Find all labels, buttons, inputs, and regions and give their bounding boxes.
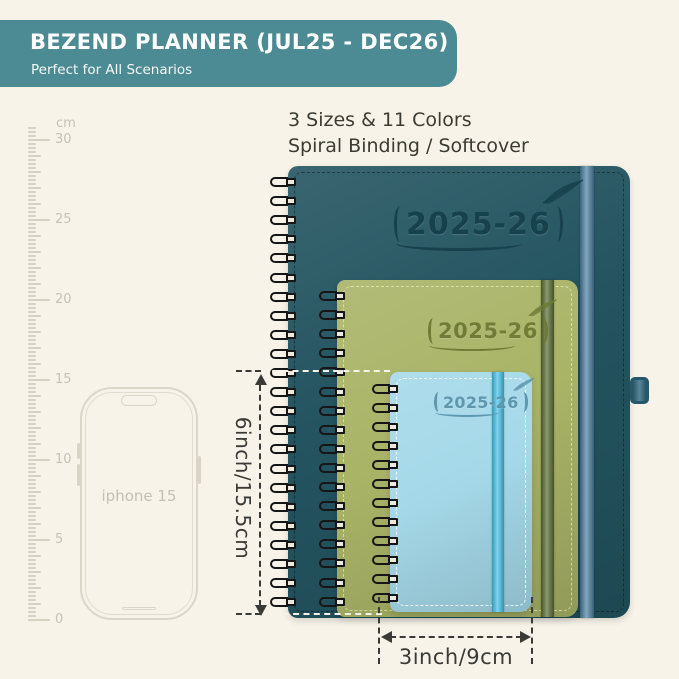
planner-small-spiral: [372, 384, 400, 612]
ruler-tick: [28, 403, 36, 405]
ruler-tick: [28, 487, 36, 489]
spiral-coil: [372, 460, 398, 470]
ruler-tick: [28, 543, 36, 545]
ruler-tick: [28, 551, 36, 553]
width-arrow-left: [381, 631, 392, 643]
spiral-coil: [270, 292, 296, 302]
ruler-tick: [28, 515, 36, 517]
coil-hole: [286, 522, 296, 530]
height-ref-line-top: [236, 370, 261, 372]
emboss-right-paren: [519, 392, 528, 412]
iphone-outline: iphone 15: [80, 387, 198, 620]
ruler-tick: [28, 531, 36, 533]
ruler-tick: [28, 583, 36, 585]
coil-hole: [335, 464, 345, 472]
width-ref-line-left: [378, 597, 380, 664]
spiral-coil: [319, 387, 345, 397]
height-dimension-line: [259, 385, 261, 606]
ruler-tick: [28, 563, 36, 565]
ruler-tick: [28, 155, 41, 157]
planner-large-year-emboss: 2025-26: [394, 206, 563, 242]
coil-hole: [388, 480, 398, 488]
ruler-tick: [28, 375, 36, 377]
coil-hole: [286, 178, 296, 186]
ruler-tick: [28, 447, 36, 449]
spiral-coil: [319, 463, 345, 473]
ruler-tick: [28, 467, 36, 469]
spiral-coil: [270, 215, 296, 225]
ruler-tick: [28, 419, 36, 421]
ruler-tick: [28, 187, 41, 189]
spiral-coil: [270, 311, 296, 321]
ruler-tick: [28, 183, 36, 185]
spiral-coil: [319, 539, 345, 549]
ruler-tick: [28, 411, 41, 413]
ruler-tick-label: 15: [55, 372, 89, 387]
ruler-tick: [28, 335, 36, 337]
coil-hole: [388, 404, 398, 412]
feather-icon: [511, 377, 536, 392]
ruler-tick: [28, 195, 36, 197]
ruler-tick: [28, 275, 36, 277]
coil-hole: [335, 330, 345, 338]
ruler-tick-label: 30: [55, 132, 89, 147]
ruler-tick: [28, 219, 50, 221]
coil-hole: [335, 311, 345, 319]
ruler-tick: [28, 383, 36, 385]
ruler-tick: [28, 431, 36, 433]
feather-icon: [526, 298, 558, 318]
ruler-tick: [28, 295, 36, 297]
spiral-coil: [319, 329, 345, 339]
emboss-left-paren: [394, 206, 406, 242]
coil-hole: [286, 216, 296, 224]
spiral-coil: [270, 177, 296, 187]
planner-large-spiral: [270, 177, 298, 616]
coil-hole: [286, 388, 296, 396]
coil-hole: [286, 293, 296, 301]
volume-down-button: [77, 464, 80, 486]
ruler-tick: [28, 483, 36, 485]
ruler-tick: [28, 319, 36, 321]
ruler-tick: [28, 239, 36, 241]
coil-hole: [388, 423, 398, 431]
ruler-tick: [28, 243, 36, 245]
width-ref-line-right: [531, 597, 533, 664]
ruler-tick: [28, 179, 36, 181]
planner-small-year-emboss: 2025-26: [434, 392, 528, 412]
ruler-tick: [28, 499, 36, 501]
ruler-tick: [28, 311, 36, 313]
coil-hole: [335, 407, 345, 415]
emboss-left-paren: [428, 318, 438, 344]
spiral-coil: [319, 348, 345, 358]
width-arrow-right: [520, 631, 531, 643]
emboss-underline: [429, 340, 515, 351]
spiral-coil: [270, 253, 296, 263]
ruler-tick: [28, 535, 36, 537]
planner-medium-spiral: [319, 291, 347, 616]
coil-hole: [286, 445, 296, 453]
coil-hole: [286, 254, 296, 262]
ruler-tick: [28, 127, 36, 129]
ruler-tick: [28, 415, 36, 417]
coil-hole: [335, 598, 345, 606]
ruler-tick: [28, 259, 36, 261]
width-dimension-line: [390, 636, 522, 638]
pen-loop: [630, 377, 649, 404]
ruler-tick: [28, 495, 36, 497]
ruler-tick: [28, 303, 36, 305]
ruler-tick: [28, 595, 36, 597]
ruler-tick: [28, 159, 36, 161]
ruler-tick: [28, 327, 36, 329]
coil-hole: [286, 503, 296, 511]
ruler-tick: [28, 255, 36, 257]
ruler-tick: [28, 479, 36, 481]
coil-hole: [335, 292, 345, 300]
ruler-tick: [28, 271, 36, 273]
spiral-coil: [270, 406, 296, 416]
ruler-tick: [28, 423, 36, 425]
spiral-coil: [319, 444, 345, 454]
ruler-tick: [28, 371, 36, 373]
coil-hole: [286, 331, 296, 339]
ruler-tick: [28, 343, 36, 345]
ruler-tick: [28, 611, 36, 613]
ruler-tick-label: 20: [55, 292, 89, 307]
ruler-tick: [28, 523, 41, 525]
ruler-tick: [28, 451, 36, 453]
spiral-coil: [270, 578, 296, 588]
ruler-tick: [28, 171, 41, 173]
spiral-coil: [372, 498, 398, 508]
ruler-tick: [28, 147, 36, 149]
ruler-tick: [28, 151, 36, 153]
ruler-tick: [28, 215, 36, 217]
planner-large-elastic-band: [580, 166, 594, 618]
ruler-tick: [28, 459, 50, 461]
spiral-coil: [372, 536, 398, 546]
binding-cover-text: Spiral Binding / Softcover: [288, 133, 529, 159]
ruler-tick: [28, 299, 50, 301]
coil-hole: [388, 537, 398, 545]
emboss-right-paren: [551, 206, 563, 242]
ruler-tick: [28, 363, 41, 365]
coil-hole: [388, 499, 398, 507]
ruler-tick: [28, 475, 41, 477]
ruler-tick: [28, 567, 36, 569]
ruler-tick: [28, 455, 36, 457]
ruler-tick: [28, 519, 36, 521]
ruler-tick: [28, 235, 41, 237]
spiral-coil: [270, 540, 296, 550]
spiral-coil: [319, 310, 345, 320]
emboss-right-paren: [538, 318, 548, 344]
spiral-coil: [372, 422, 398, 432]
ruler-tick: [28, 575, 36, 577]
spiral-coil: [319, 501, 345, 511]
coil-hole: [388, 556, 398, 564]
coil-hole: [335, 388, 345, 396]
ruler-tick: [28, 191, 36, 193]
ruler-tick: [28, 555, 41, 557]
spiral-coil: [319, 597, 345, 607]
coil-hole: [335, 502, 345, 510]
ruler-tick: [28, 387, 36, 389]
coil-hole: [388, 575, 398, 583]
spiral-coil: [372, 384, 398, 394]
coil-hole: [286, 235, 296, 243]
coil-hole: [286, 484, 296, 492]
spiral-coil: [270, 273, 296, 283]
ruler-tick: [28, 399, 36, 401]
coil-hole: [388, 442, 398, 450]
spiral-coil: [319, 520, 345, 530]
width-dimension-label: 3inch/9cm: [399, 645, 513, 669]
coil-hole: [335, 426, 345, 434]
height-ref-line-top-overlay: [262, 370, 390, 372]
ruler-tick: [28, 527, 36, 529]
ruler-tick: [28, 407, 36, 409]
coil-hole: [335, 349, 345, 357]
ruler-tick: [28, 463, 36, 465]
ruler-tick: [28, 251, 41, 253]
spiral-coil: [372, 593, 398, 603]
spiral-coil: [270, 483, 296, 493]
coil-hole: [286, 274, 296, 282]
emboss-underline: [435, 408, 499, 417]
ruler-tick: [28, 167, 36, 169]
ruler-tick: [28, 163, 36, 165]
ruler-tick: [28, 559, 36, 561]
spiral-coil: [319, 406, 345, 416]
ruler-tick: [28, 203, 41, 205]
ruler-tick: [28, 287, 36, 289]
ruler-tick: [28, 247, 36, 249]
ruler-tick: [28, 143, 36, 145]
ruler-tick: [28, 139, 50, 141]
coil-hole: [286, 407, 296, 415]
spiral-coil: [372, 574, 398, 584]
ruler-tick: [28, 307, 36, 309]
ruler-tick: [28, 323, 36, 325]
ruler-tick: [28, 603, 41, 605]
ruler-tick: [28, 279, 36, 281]
coil-hole: [335, 445, 345, 453]
ruler-tick: [28, 267, 41, 269]
ruler-tick: [28, 547, 36, 549]
coil-hole: [388, 518, 398, 526]
spiral-coil: [319, 578, 345, 588]
coil-hole: [388, 461, 398, 469]
ruler-tick: [28, 619, 50, 621]
home-indicator: [122, 607, 156, 610]
ruler-tick: [28, 503, 36, 505]
spiral-coil: [270, 521, 296, 531]
planner-medium-year-label: 2025-26: [438, 319, 538, 343]
ruler-tick: [28, 283, 41, 285]
ruler-unit-label: cm: [56, 116, 76, 131]
ruler-tick-label: 0: [55, 612, 89, 627]
spiral-coil: [270, 444, 296, 454]
spiral-coil: [319, 425, 345, 435]
coil-hole: [335, 483, 345, 491]
ruler-tick: [28, 263, 36, 265]
ruler-tick: [28, 339, 36, 341]
ruler-tick: [28, 587, 41, 589]
spiral-coil: [319, 558, 345, 568]
ruler-tick: [28, 439, 36, 441]
ruler-tick: [28, 351, 36, 353]
height-ref-line-bottom-overlay: [262, 613, 382, 615]
ruler-tick: [28, 135, 36, 137]
ruler-tick: [28, 199, 36, 201]
ruler-tick: [28, 607, 36, 609]
spiral-coil: [270, 196, 296, 206]
product-infographic: BEZEND PLANNER (JUL25 - DEC26) Perfect f…: [0, 0, 679, 679]
coil-hole: [286, 560, 296, 568]
coil-hole: [286, 598, 296, 606]
spiral-coil: [319, 291, 345, 301]
ruler-tick: [28, 615, 36, 617]
ruler-tick: [28, 315, 41, 317]
ruler-tick: [28, 491, 41, 493]
ruler-tick-label: 25: [55, 212, 89, 227]
ruler-tick: [28, 291, 36, 293]
spiral-coil: [270, 330, 296, 340]
ruler-tick: [28, 131, 36, 133]
ruler-tick: [28, 599, 36, 601]
sizes-colors-text: 3 Sizes & 11 Colors: [288, 107, 529, 133]
ruler-tick: [28, 395, 41, 397]
spiral-coil: [270, 234, 296, 244]
coil-hole: [335, 579, 345, 587]
coil-hole: [335, 559, 345, 567]
ruler-tick: [28, 231, 36, 233]
ruler-tick: [28, 427, 41, 429]
coil-hole: [335, 540, 345, 548]
spiral-coil: [270, 425, 296, 435]
coil-hole: [388, 385, 398, 393]
power-button: [198, 456, 201, 484]
ruler-tick: [28, 331, 41, 333]
spiral-coil: [319, 482, 345, 492]
ruler-tick: [28, 355, 36, 357]
ruler-tick: [28, 379, 50, 381]
dynamic-island: [121, 395, 157, 406]
iphone-label: iphone 15: [82, 487, 196, 505]
coil-hole: [286, 197, 296, 205]
spiral-coil: [270, 464, 296, 474]
coil-hole: [286, 312, 296, 320]
coil-hole: [286, 350, 296, 358]
ruler-tick: [28, 223, 36, 225]
ruler-tick: [28, 227, 36, 229]
spiral-coil: [372, 517, 398, 527]
spiral-coil: [372, 403, 398, 413]
ruler-tick: [28, 347, 41, 349]
coil-hole: [286, 465, 296, 473]
height-dimension-label: 6inch/15.5cm: [231, 417, 255, 559]
spiral-coil: [270, 597, 296, 607]
spiral-coil: [372, 479, 398, 489]
spiral-coil: [319, 367, 345, 377]
spiral-coil: [372, 441, 398, 451]
ruler-tick: [28, 443, 41, 445]
ruler-tick: [28, 511, 36, 513]
coil-hole: [286, 579, 296, 587]
ruler-tick: [28, 471, 36, 473]
height-arrow-up: [255, 374, 267, 385]
ruler-tick: [28, 591, 36, 593]
coil-hole: [286, 426, 296, 434]
ruler-tick: [28, 539, 50, 541]
ruler-tick: [28, 359, 36, 361]
ruler-tick: [28, 367, 36, 369]
spiral-coil: [270, 502, 296, 512]
spiral-coil: [270, 349, 296, 359]
ruler-tick: [28, 175, 36, 177]
product-features-text: 3 Sizes & 11 Colors Spiral Binding / Sof…: [288, 107, 529, 159]
coil-hole: [286, 541, 296, 549]
feather-icon: [539, 178, 585, 206]
planner-medium-year-emboss: 2025-26: [428, 318, 548, 344]
spiral-coil: [270, 559, 296, 569]
spiral-coil: [270, 387, 296, 397]
coil-hole: [335, 521, 345, 529]
ruler-tick: [28, 207, 36, 209]
ruler-tick: [28, 435, 36, 437]
ruler-tick: [28, 507, 41, 509]
ruler-tick: [28, 391, 36, 393]
spiral-coil: [372, 555, 398, 565]
height-arrow-down: [255, 605, 267, 616]
ruler-tick: [28, 211, 36, 213]
ruler-tick: [28, 579, 36, 581]
volume-up-button: [77, 443, 80, 459]
emboss-underline: [396, 236, 522, 251]
ruler-tick: [28, 571, 41, 573]
coil-hole: [388, 594, 398, 602]
